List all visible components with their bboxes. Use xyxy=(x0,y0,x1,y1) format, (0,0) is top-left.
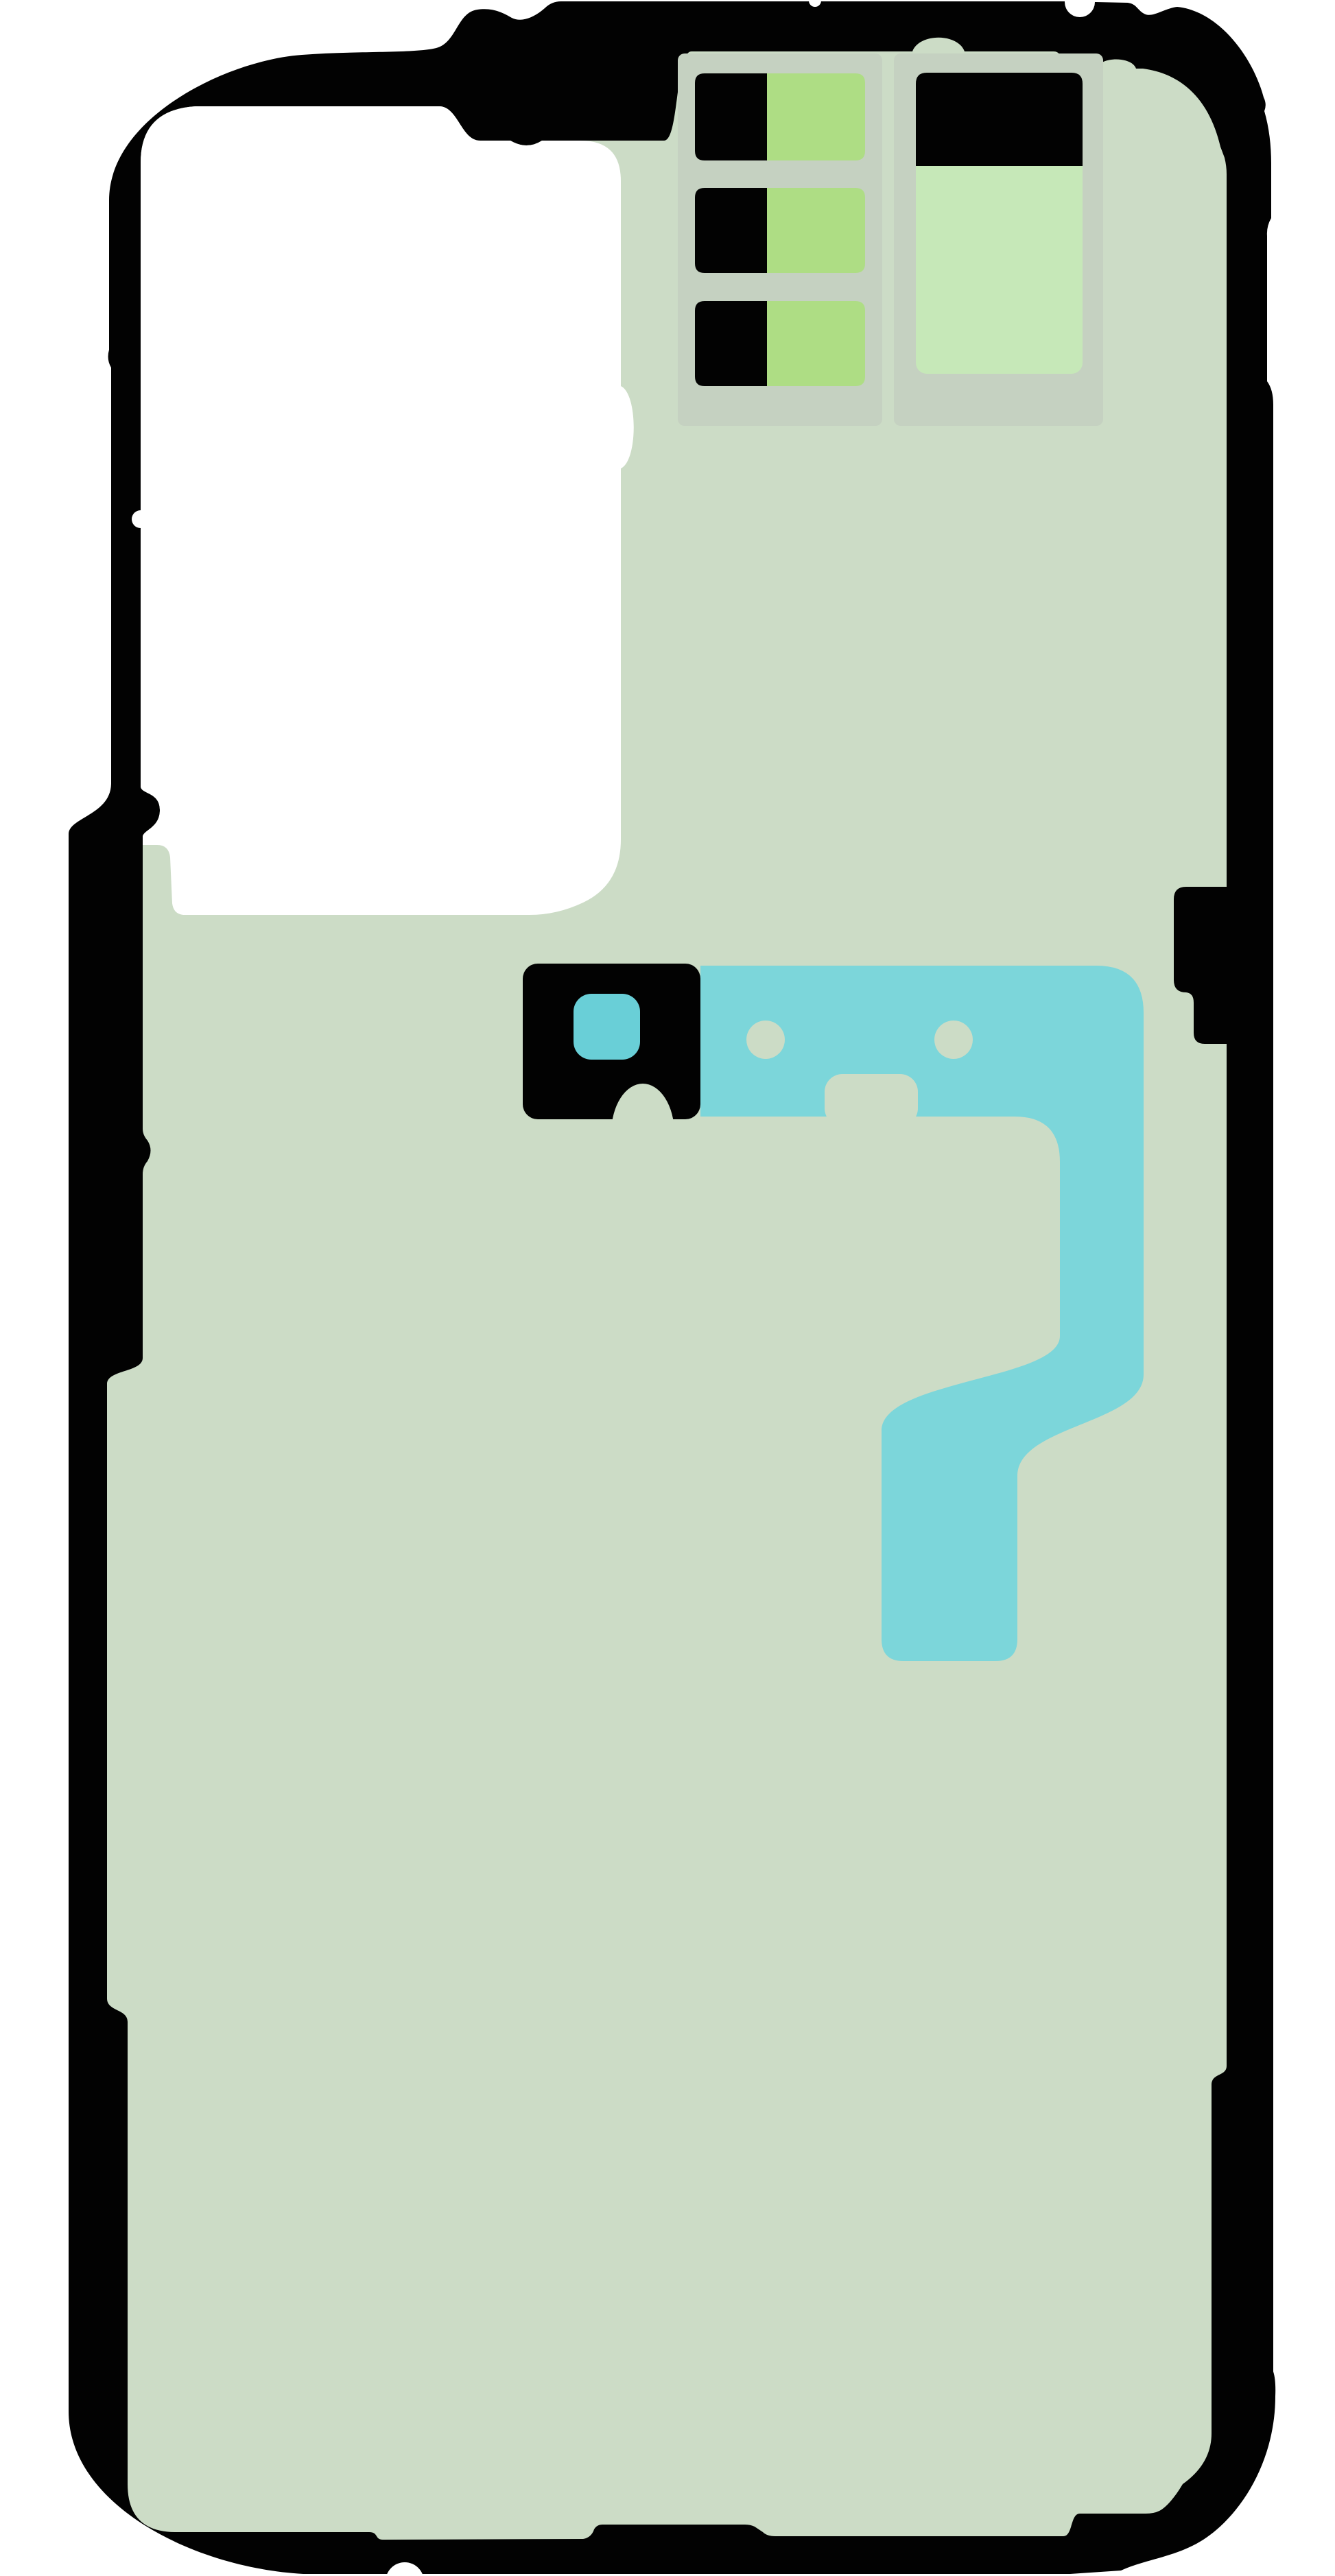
pull-tab-1-black xyxy=(695,73,767,160)
pull-tab-3-black xyxy=(695,301,767,386)
left-edge-notch xyxy=(132,510,150,528)
flex-adhesive-hole-right xyxy=(934,1021,973,1059)
pull-tab-2-black xyxy=(695,188,767,273)
flash-patch-notch xyxy=(611,1084,674,1182)
flash-window xyxy=(574,994,640,1060)
pull-tab-2-green xyxy=(767,188,865,273)
pull-tab-3-green xyxy=(767,301,865,386)
sheet-svg xyxy=(0,0,1335,2576)
flex-adhesive-bottom-notch xyxy=(825,1074,918,1126)
sticker-card-black-top xyxy=(916,73,1083,166)
adhesive-sheet-image xyxy=(0,0,1335,2576)
pull-tab-1-green xyxy=(767,73,865,160)
camera-cutout-window xyxy=(141,106,634,915)
flex-adhesive-hole-left xyxy=(746,1021,785,1059)
